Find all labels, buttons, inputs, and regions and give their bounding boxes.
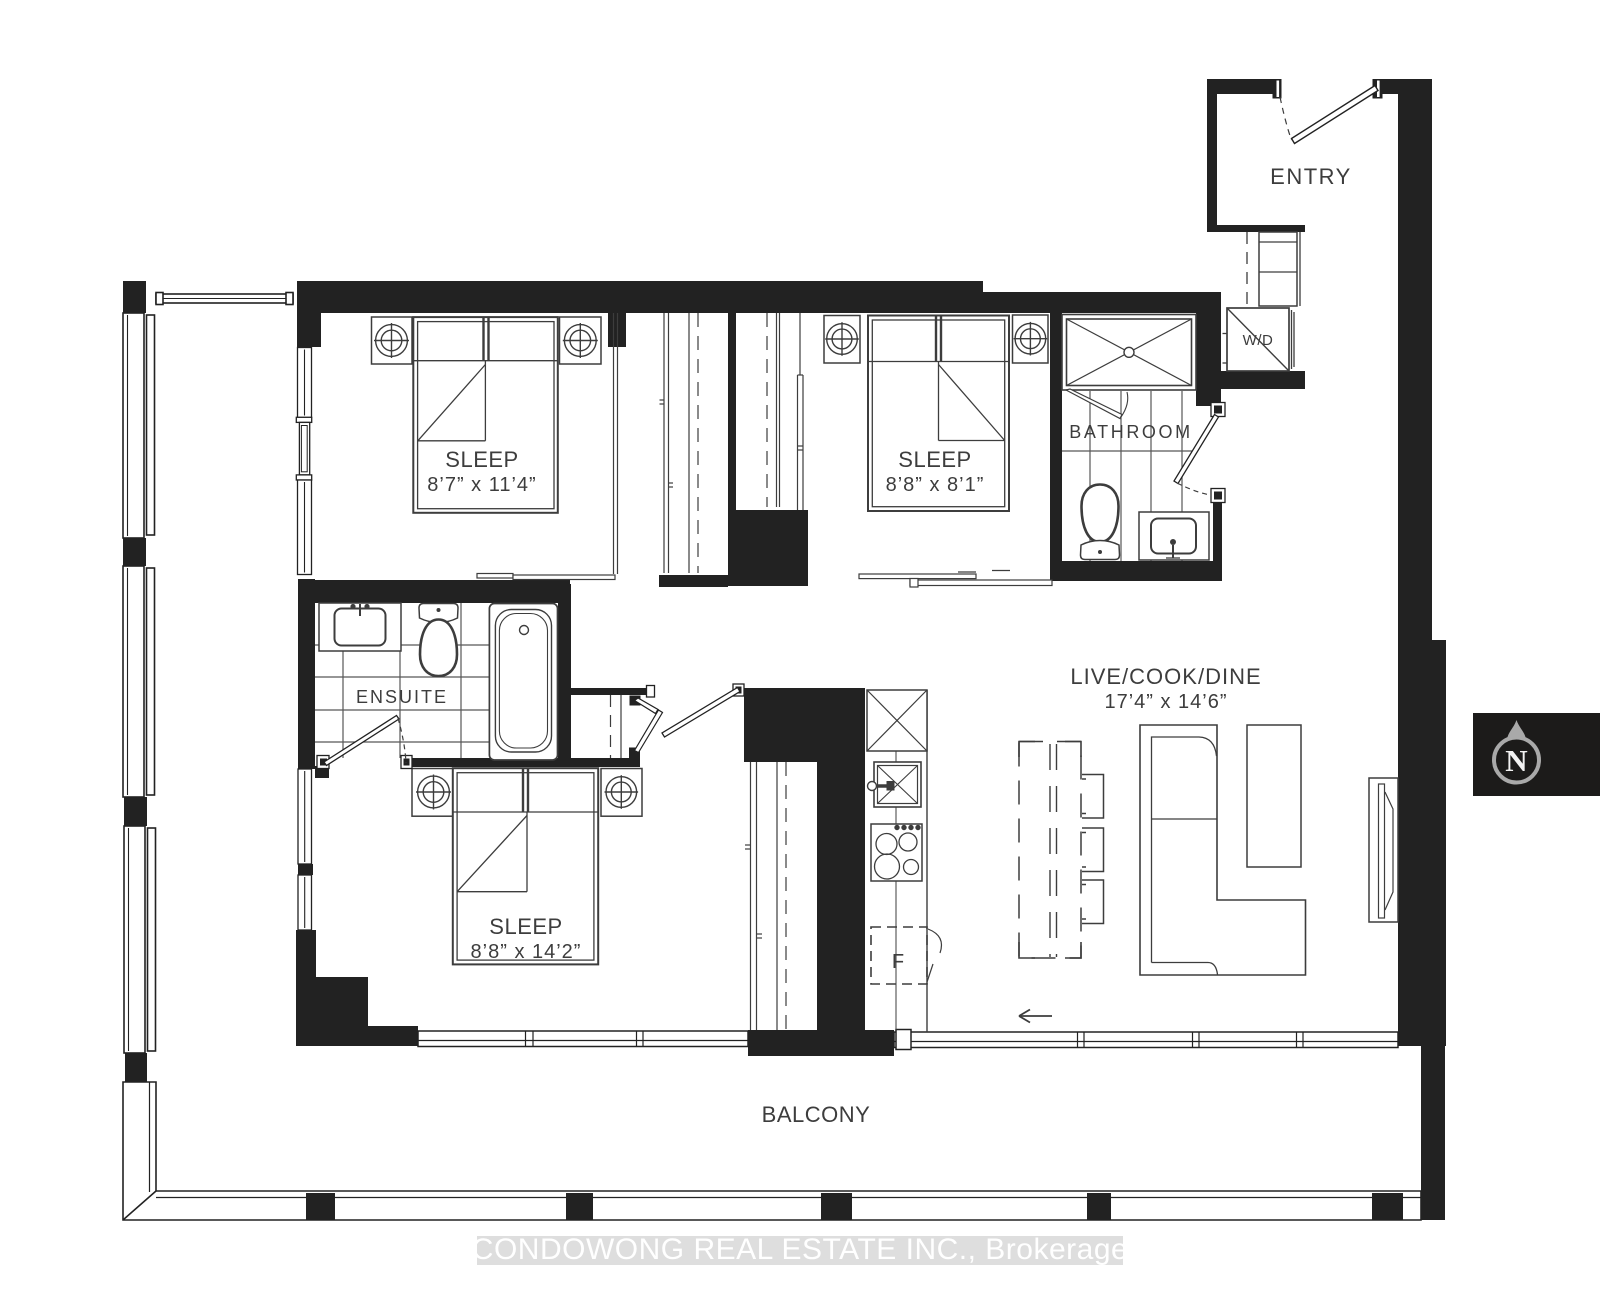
svg-text:CONDOWONG REAL ESTATE INC., Br: CONDOWONG REAL ESTATE INC., Brokerage: [472, 1233, 1128, 1266]
svg-text:W/D: W/D: [1243, 332, 1274, 349]
svg-text:F: F: [892, 951, 904, 973]
svg-text:N: N: [1505, 743, 1527, 778]
svg-text:SLEEP: SLEEP: [445, 447, 518, 472]
svg-text:ENTRY: ENTRY: [1270, 164, 1352, 189]
svg-text:17’4” x 14’6”: 17’4” x 14’6”: [1104, 691, 1227, 713]
svg-text:8’8” x 14’2”: 8’8” x 14’2”: [471, 941, 582, 963]
svg-text:BATHROOM: BATHROOM: [1069, 422, 1192, 442]
svg-text:SLEEP: SLEEP: [489, 914, 562, 939]
svg-text:LIVE/COOK/DINE: LIVE/COOK/DINE: [1070, 664, 1261, 689]
svg-text:SLEEP: SLEEP: [898, 447, 971, 472]
svg-text:8’7” x 11’4”: 8’7” x 11’4”: [427, 474, 536, 496]
svg-text:ENSUITE: ENSUITE: [356, 687, 448, 707]
svg-text:BALCONY: BALCONY: [762, 1102, 871, 1127]
svg-text:8’8” x 8’1”: 8’8” x 8’1”: [886, 474, 985, 496]
